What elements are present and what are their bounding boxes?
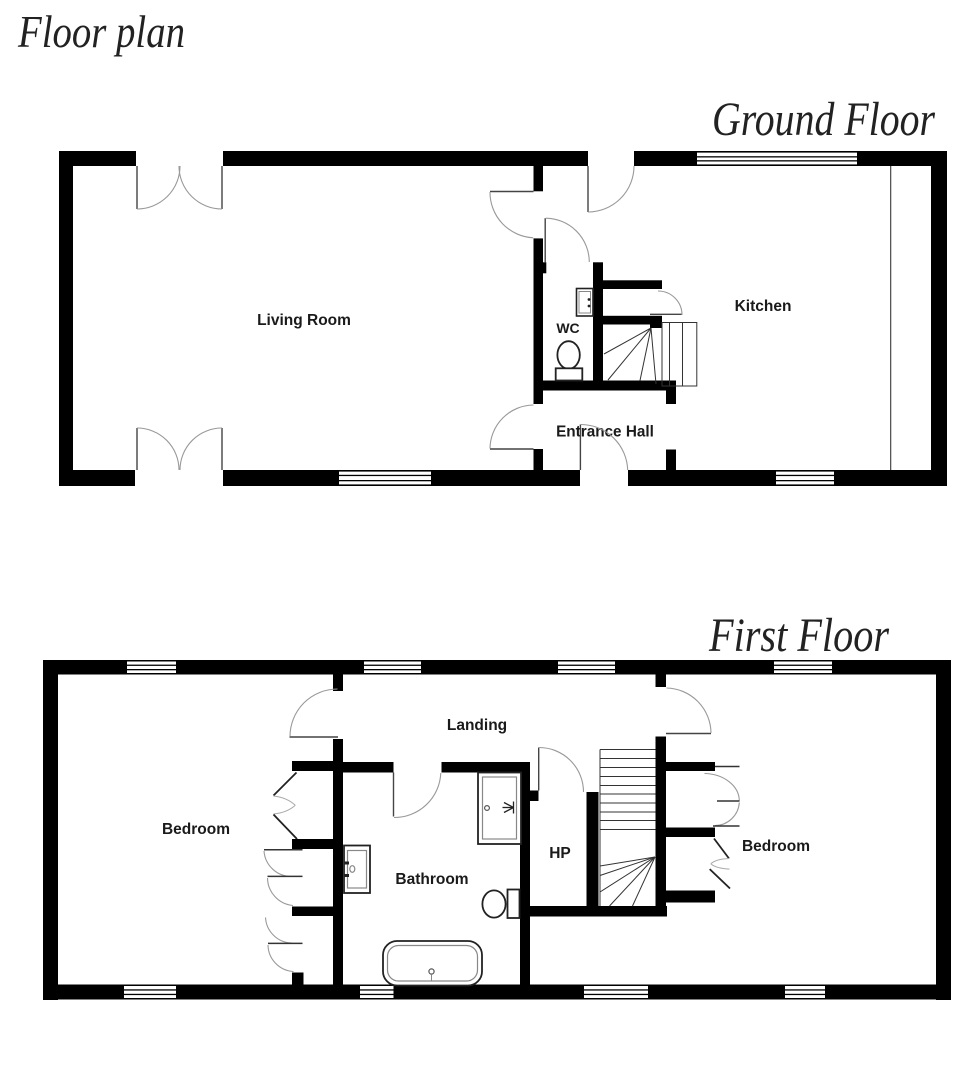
svg-text:Floor plan: Floor plan: [17, 6, 185, 57]
svg-text:Landing: Landing: [447, 717, 507, 734]
svg-text:Kitchen: Kitchen: [735, 298, 792, 315]
svg-text:HP: HP: [549, 845, 571, 862]
svg-text:First Floor: First Floor: [708, 609, 889, 662]
svg-text:Living Room: Living Room: [257, 312, 351, 329]
svg-text:Bedroom: Bedroom: [742, 838, 810, 855]
svg-text:Bedroom: Bedroom: [162, 821, 230, 838]
svg-text:Bathroom: Bathroom: [395, 871, 468, 888]
svg-text:WC: WC: [556, 320, 579, 336]
svg-text:Entrance Hall: Entrance Hall: [556, 424, 654, 441]
svg-text:Ground Floor: Ground Floor: [712, 93, 935, 146]
